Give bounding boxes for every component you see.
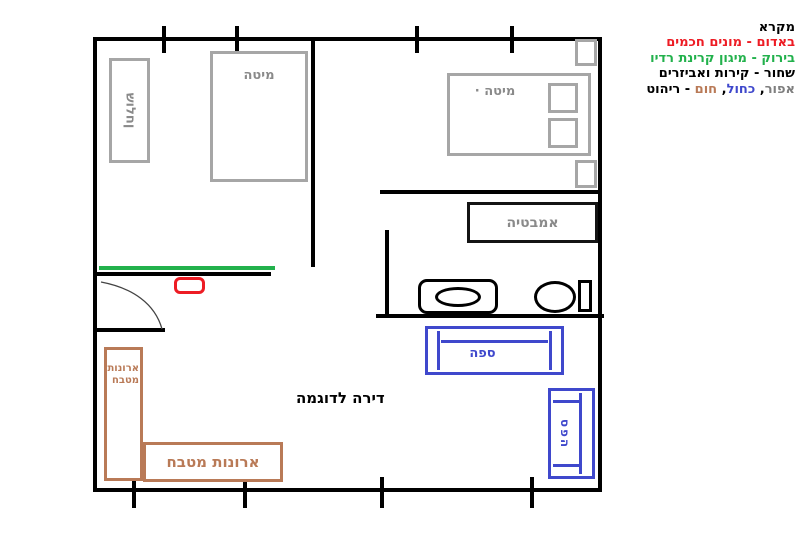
kitchen-cabinets-horizontal: ארונות מטבח [143,442,283,482]
window-tick [530,477,534,508]
smart-meter-box [174,277,205,294]
legend: מקרא באדום - מונים חכמים בירוק - מיגון ק… [646,20,795,97]
legend-word-furniture: - ריהוט [646,82,694,97]
legend-comma: , [755,82,764,97]
wall-bathroom-bottom [376,314,604,318]
pillow [548,83,578,113]
table-label: שולחן [122,93,137,129]
nightstand [575,160,597,188]
toilet-bowl [534,281,576,313]
table: שולחן [109,58,150,163]
window-tick [132,477,136,508]
wall-left [93,37,97,492]
bed-single: מיטה [210,51,308,182]
wall-bathroom-top [380,190,602,194]
window-tick [510,26,514,53]
window-tick [162,26,166,53]
sofa-label: ספה [428,346,537,361]
sofa-armrest [549,331,552,370]
wall-bedroom-divider [311,39,315,267]
wall-entry [97,272,271,276]
toilet-tank [578,280,592,312]
radiation-shield-line [99,266,275,270]
legend-word-gray: אפור [765,82,795,97]
window-tick [380,477,384,508]
legend-word-brown: חום [695,82,717,97]
legend-item-walls-fixtures: שחור - קירות ואביזרים [646,66,795,81]
wall-bottom [93,488,602,492]
kitchen-cabinets-vertical: ארונות מטבח [104,347,143,481]
plan-title: דירה לדוגמה [296,389,385,407]
bathtub: אמבטיה [467,202,598,243]
legend-item-furniture: אפור, כחול, חום - ריהוט [646,82,795,97]
legend-word-blue: כחול [727,82,756,97]
legend-item-smart-meters: באדום - מונים חכמים [646,35,795,50]
wall-right [598,37,602,492]
wall-top [93,37,602,41]
door-arc [95,278,170,333]
kitchen-cabinets-vertical-label: ארונות מטבח [107,363,139,387]
sofa-backrest [579,393,582,474]
floor-plan-canvas: מקרא באדום - מונים חכמים בירוק - מיגון ק… [0,0,800,533]
window-tick [235,26,239,53]
sofa-backrest [441,340,548,343]
sofa: ספה [425,326,564,375]
sink-basin [435,287,481,307]
legend-comma: , [717,82,726,97]
kitchen-cabinets-horizontal-label: ארונות מטבח [166,453,259,471]
bathtub-label: אמבטיה [506,215,558,231]
sofa-vertical: ספה [548,388,595,479]
wall-bathroom-left [385,230,389,318]
sofa-vertical-label: ספה [558,418,572,448]
legend-item-radiation-shield: בירוק - מיגון קרינת רדיו [646,51,795,66]
window-tick [415,26,419,53]
nightstand [575,39,597,66]
sofa-vertical-label-wrap: ספה [551,391,579,476]
pillow [548,118,578,148]
legend-title: מקרא [646,20,795,35]
bed-single-label: מיטה [244,68,275,83]
bed-double-label: · מיטה [450,84,540,99]
